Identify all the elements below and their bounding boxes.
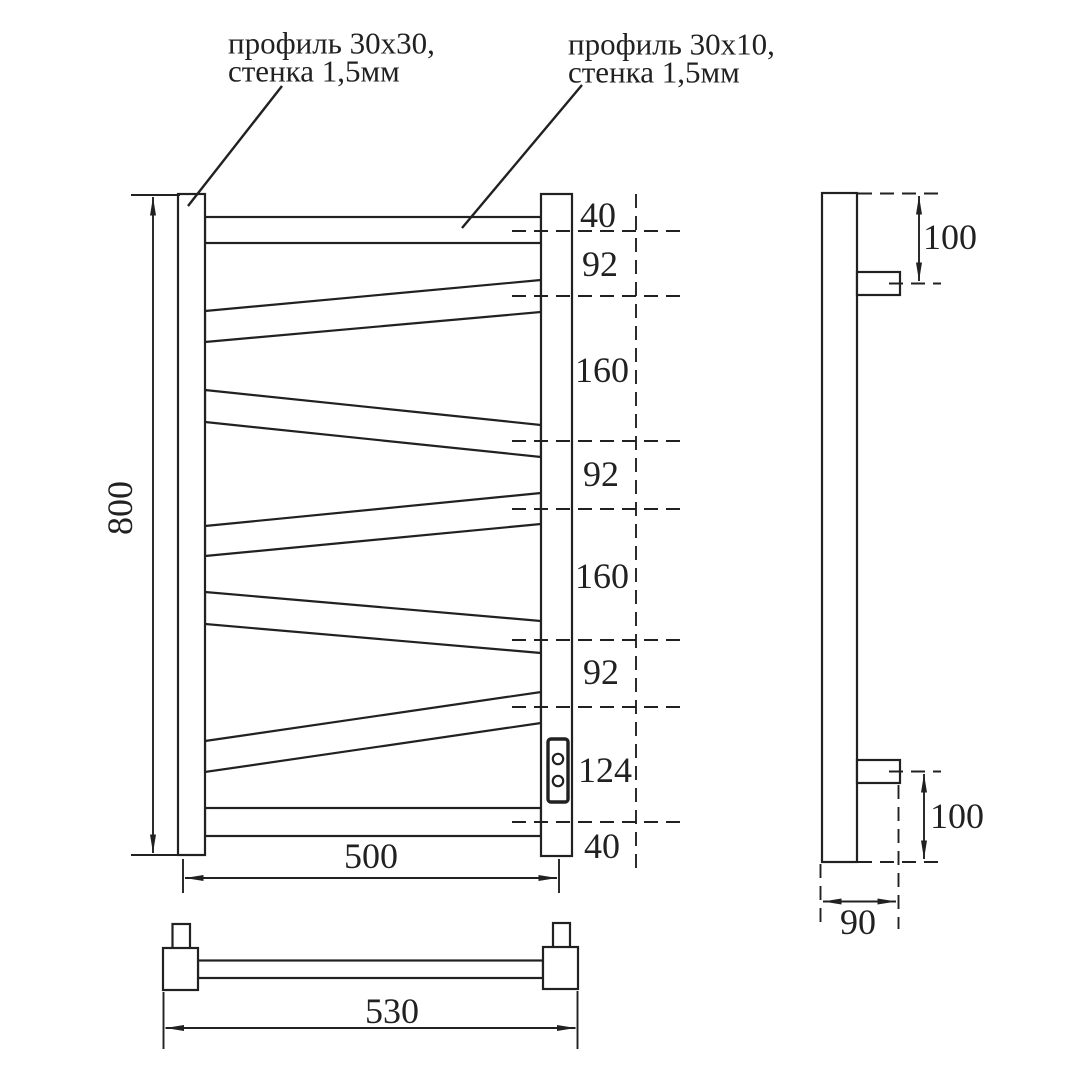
left-post [178, 194, 205, 855]
rung-6 [205, 692, 541, 772]
left-profile-leader-line [188, 86, 282, 206]
top-bracket-offset-dimension: 100 [919, 196, 977, 281]
bottom-bracket-offset-dimension: 100 [924, 774, 984, 859]
rung-4 [205, 493, 541, 556]
rung-5 [205, 592, 541, 653]
bottom-rung [205, 808, 541, 836]
dim-top-offset-100: 100 [923, 217, 977, 257]
drawing-canvas: 40 92 160 92 160 92 124 40 800 500 п [0, 0, 1080, 1080]
front-view: 40 92 160 92 160 92 124 40 800 500 п [100, 26, 775, 894]
left-profile-label-line2: стенка 1,5мм [228, 54, 400, 89]
dim-bottom-offset-100: 100 [930, 796, 984, 836]
right-mount-block [543, 947, 578, 989]
right-profile-label-line2: стенка 1,5мм [568, 55, 740, 90]
left-mount-foot [173, 924, 191, 950]
element-indicator-bottom [553, 776, 563, 786]
height-dimension: 800 [100, 195, 180, 855]
dim-segment-92-a: 92 [582, 244, 618, 284]
rung-3 [205, 390, 541, 457]
width-dimension: 500 [183, 836, 559, 893]
dim-segment-40-top: 40 [580, 195, 616, 235]
dim-segment-160-a: 160 [575, 350, 629, 390]
dim-segment-40-bottom: 40 [584, 826, 620, 866]
dim-segment-92-c: 92 [583, 652, 619, 692]
dim-segment-160-b: 160 [575, 556, 629, 596]
right-mount-foot [553, 923, 570, 949]
top-rung [205, 217, 541, 243]
towel-rail-technical-drawing: 40 92 160 92 160 92 124 40 800 500 п [0, 0, 1080, 1080]
mount-width-dimension: 530 [164, 991, 578, 1049]
profile-callouts: профиль 30х30, стенка 1,5мм профиль 30х1… [188, 26, 775, 229]
element-indicator-top [553, 754, 563, 764]
dim-width-500: 500 [344, 836, 398, 876]
heating-element-box [548, 739, 568, 802]
rung-2 [205, 280, 541, 342]
dim-segment-124: 124 [578, 750, 632, 790]
dim-mount-width-530: 530 [365, 991, 419, 1031]
bottom-view: 530 [163, 923, 578, 1049]
side-post [822, 193, 857, 862]
depth-dimension: 90 [823, 902, 896, 943]
dim-segment-92-b: 92 [583, 454, 619, 494]
left-mount-block [163, 948, 198, 990]
side-view: 100 100 90 [821, 193, 985, 942]
dim-depth-90: 90 [840, 902, 876, 942]
dim-height-800: 800 [100, 481, 140, 535]
cross-bar [198, 961, 543, 979]
